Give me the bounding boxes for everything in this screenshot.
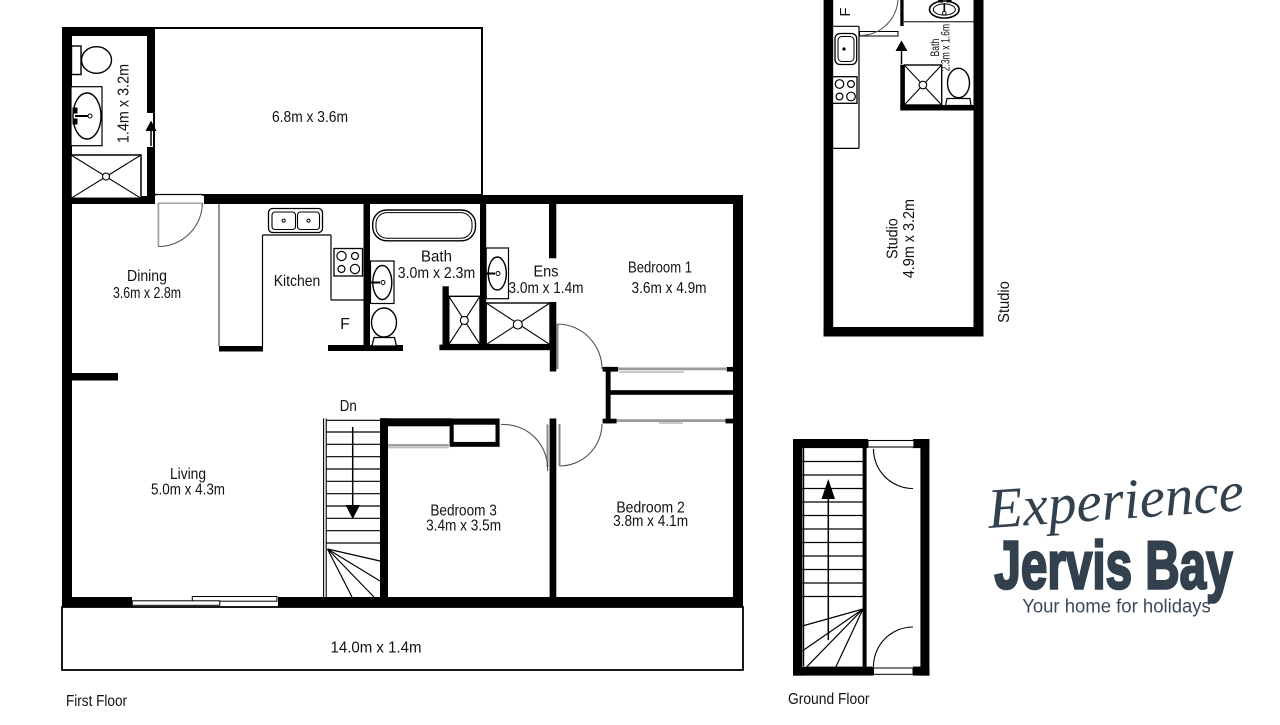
- svg-text:Dn: Dn: [340, 398, 357, 415]
- svg-text:14.0m x 1.4m: 14.0m x 1.4m: [331, 640, 422, 657]
- svg-text:Studio: Studio: [884, 218, 902, 259]
- svg-text:F: F: [837, 7, 854, 16]
- svg-text:First Floor: First Floor: [66, 693, 128, 710]
- svg-text:3.8m x 4.1m: 3.8m x 4.1m: [613, 513, 688, 530]
- svg-text:Studio: Studio: [995, 281, 1013, 323]
- svg-text:3.0m x 1.4m: 3.0m x 1.4m: [509, 280, 584, 297]
- svg-text:Ens: Ens: [534, 264, 559, 281]
- svg-text:6.8m x 3.6m: 6.8m x 3.6m: [272, 109, 348, 126]
- svg-text:Bath: Bath: [421, 249, 452, 266]
- svg-text:Dining: Dining: [127, 268, 167, 285]
- svg-text:Your home for holidays: Your home for holidays: [1022, 596, 1211, 618]
- svg-text:5.0m x 4.3m: 5.0m x 4.3m: [151, 482, 225, 499]
- svg-text:4.9m x 3.2m: 4.9m x 3.2m: [900, 199, 918, 278]
- svg-text:2.3m x 1.6m: 2.3m x 1.6m: [940, 24, 952, 71]
- svg-text:3.6m x 4.9m: 3.6m x 4.9m: [632, 280, 707, 297]
- svg-text:Jervis Bay: Jervis Bay: [994, 528, 1232, 603]
- svg-text:F: F: [340, 316, 350, 333]
- svg-text:Bedroom 1: Bedroom 1: [628, 260, 692, 277]
- svg-text:Kitchen: Kitchen: [274, 273, 321, 290]
- svg-text:3.0m x 2.3m: 3.0m x 2.3m: [398, 265, 476, 282]
- svg-text:3.4m x 3.5m: 3.4m x 3.5m: [426, 518, 501, 535]
- svg-text:Ground Floor: Ground Floor: [788, 691, 870, 708]
- svg-text:3.6m x 2.8m: 3.6m x 2.8m: [113, 285, 181, 302]
- svg-text:1.4m x 3.2m: 1.4m x 3.2m: [115, 64, 133, 143]
- svg-text:Living: Living: [170, 466, 206, 483]
